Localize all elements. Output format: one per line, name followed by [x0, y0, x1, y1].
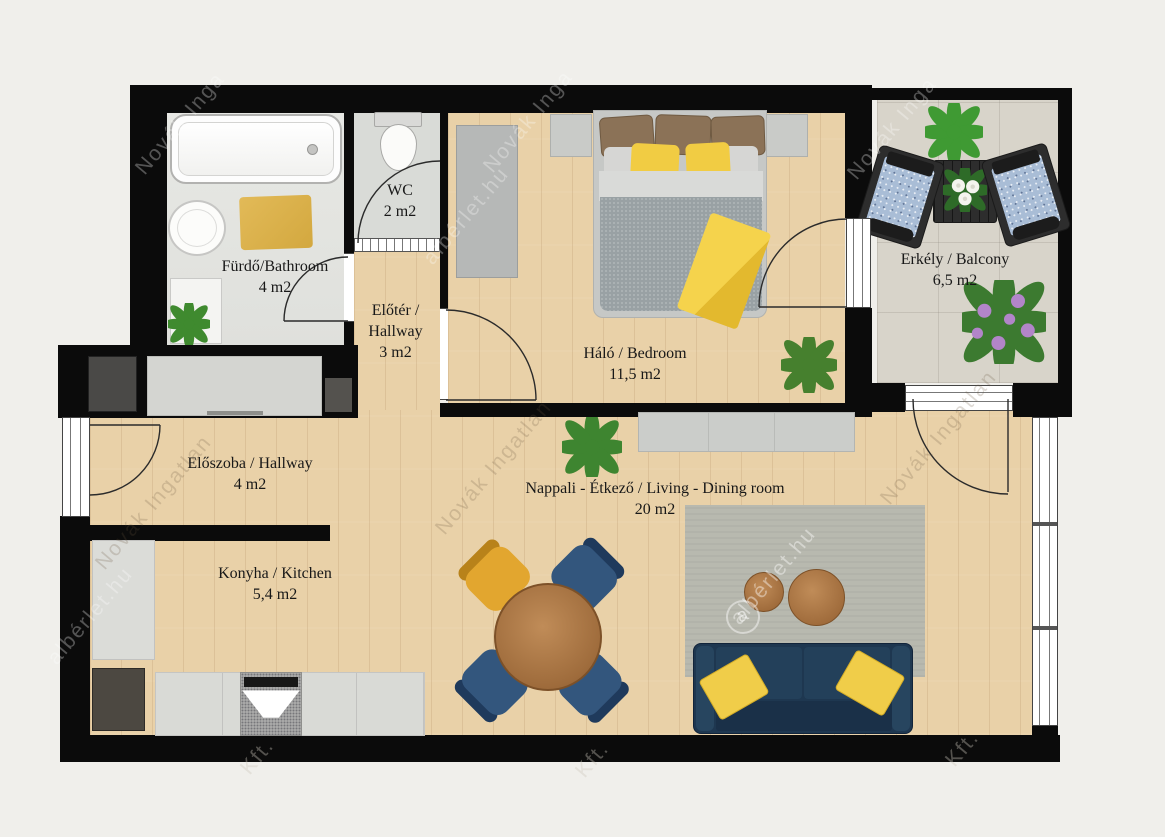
room-label-kitchen: Konyha / Kitchen 5,4 m2 [190, 563, 360, 605]
room-label-bedroom: Háló / Bedroom 11,5 m2 [540, 343, 730, 385]
room-label-wc: WC 2 m2 [360, 180, 440, 222]
room-label-balcony: Erkély / Balcony 6,5 m2 [875, 249, 1035, 291]
room-area: 11,5 m2 [540, 364, 730, 385]
room-label-vestibule: Előtér / Hallway 3 m2 [348, 300, 443, 363]
room-label-hallway: Előszoba / Hallway 4 m2 [160, 453, 340, 495]
room-name: Előszoba / Hallway [160, 453, 340, 474]
room-name: WC [360, 180, 440, 201]
room-area: 6,5 m2 [875, 270, 1035, 291]
room-area: 3 m2 [348, 342, 443, 363]
room-area: 4 m2 [185, 277, 365, 298]
room-name: Fürdő/Bathroom [185, 256, 365, 277]
room-name: Erkély / Balcony [875, 249, 1035, 270]
room-area: 4 m2 [160, 474, 340, 495]
room-area: 20 m2 [470, 499, 840, 520]
room-label-bathroom: Fürdő/Bathroom 4 m2 [185, 256, 365, 298]
door-swing-arcs [0, 0, 1165, 837]
room-name: Konyha / Kitchen [190, 563, 360, 584]
room-name: Háló / Bedroom [540, 343, 730, 364]
room-label-living-dining: Nappali - Étkező / Living - Dining room … [470, 478, 840, 520]
room-area: 2 m2 [360, 201, 440, 222]
floor-plan: Fürdő/Bathroom 4 m2 WC 2 m2 Előtér / Hal… [0, 0, 1165, 837]
room-name: Hallway [348, 321, 443, 342]
room-name: Előtér / [348, 300, 443, 321]
room-area: 5,4 m2 [190, 584, 360, 605]
room-name: Nappali - Étkező / Living - Dining room [470, 478, 840, 499]
